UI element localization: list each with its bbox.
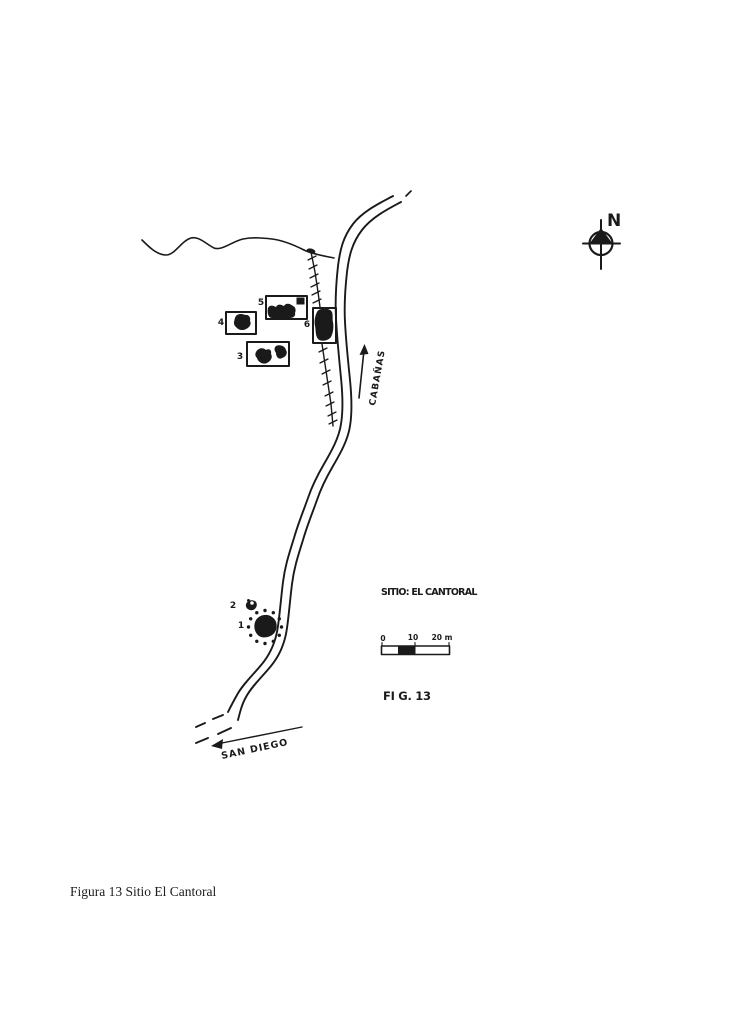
structure-2-notch <box>250 601 254 605</box>
road-direction-san-diego: SAN DIEGO <box>211 727 302 762</box>
cabanas-arrowhead <box>360 344 369 355</box>
structure-3: 3 <box>237 342 289 366</box>
structure-1-label: 1 <box>238 621 244 631</box>
structure-2-dot <box>247 599 250 602</box>
structure-6-label: 6 <box>304 320 310 330</box>
structure-6-mound <box>315 309 334 341</box>
scale-tick-20: 20 m <box>432 633 453 642</box>
road <box>196 191 411 743</box>
structure-4-label: 4 <box>218 318 224 328</box>
structure-4: 4 <box>218 312 256 334</box>
structure-5-label: 5 <box>258 298 264 308</box>
structure-1-mound <box>254 615 276 638</box>
scale-tick-10: 10 <box>408 633 418 642</box>
structure-3-mound-b <box>275 345 287 358</box>
road-left-edge <box>228 196 393 712</box>
scanned-page: 5 4 6 3 2 <box>0 0 745 1024</box>
structure-5: 5 <box>258 296 307 319</box>
scale-bar: 0 10 20 m <box>380 633 452 655</box>
structure-6: 6 <box>304 308 336 343</box>
stream-path <box>142 238 334 258</box>
structure-3-mound-a <box>255 348 271 363</box>
road-dashed-continuation <box>196 715 231 743</box>
site-map-figure: 5 4 6 3 2 <box>0 0 745 1024</box>
north-arrow: N <box>583 211 621 269</box>
structure-3-label: 3 <box>237 352 243 362</box>
figure-label: FI G. 13 <box>383 689 432 703</box>
road-label-cabanas: CABAÑAS <box>367 349 388 406</box>
scale-tick-0: 0 <box>380 634 385 643</box>
structure-2-label: 2 <box>230 601 236 611</box>
road-top-dash <box>406 191 411 196</box>
scale-bar-filled-segment <box>398 646 416 655</box>
figure-caption: Figura 13 Sitio El Cantoral <box>70 884 216 900</box>
structure-1: 1 <box>238 609 283 645</box>
structure-5-mound <box>268 304 296 318</box>
road-right-edge <box>238 202 401 720</box>
cabanas-arrow <box>359 350 364 398</box>
north-label: N <box>607 211 621 231</box>
site-label: SITIO: EL CANTORAL <box>381 587 478 598</box>
road-direction-cabanas: CABAÑAS <box>359 344 388 407</box>
structure-5-feature <box>297 298 305 305</box>
structure-4-mound <box>234 314 251 330</box>
structure-2: 2 <box>230 599 257 611</box>
san-diego-arrowhead <box>211 739 223 749</box>
